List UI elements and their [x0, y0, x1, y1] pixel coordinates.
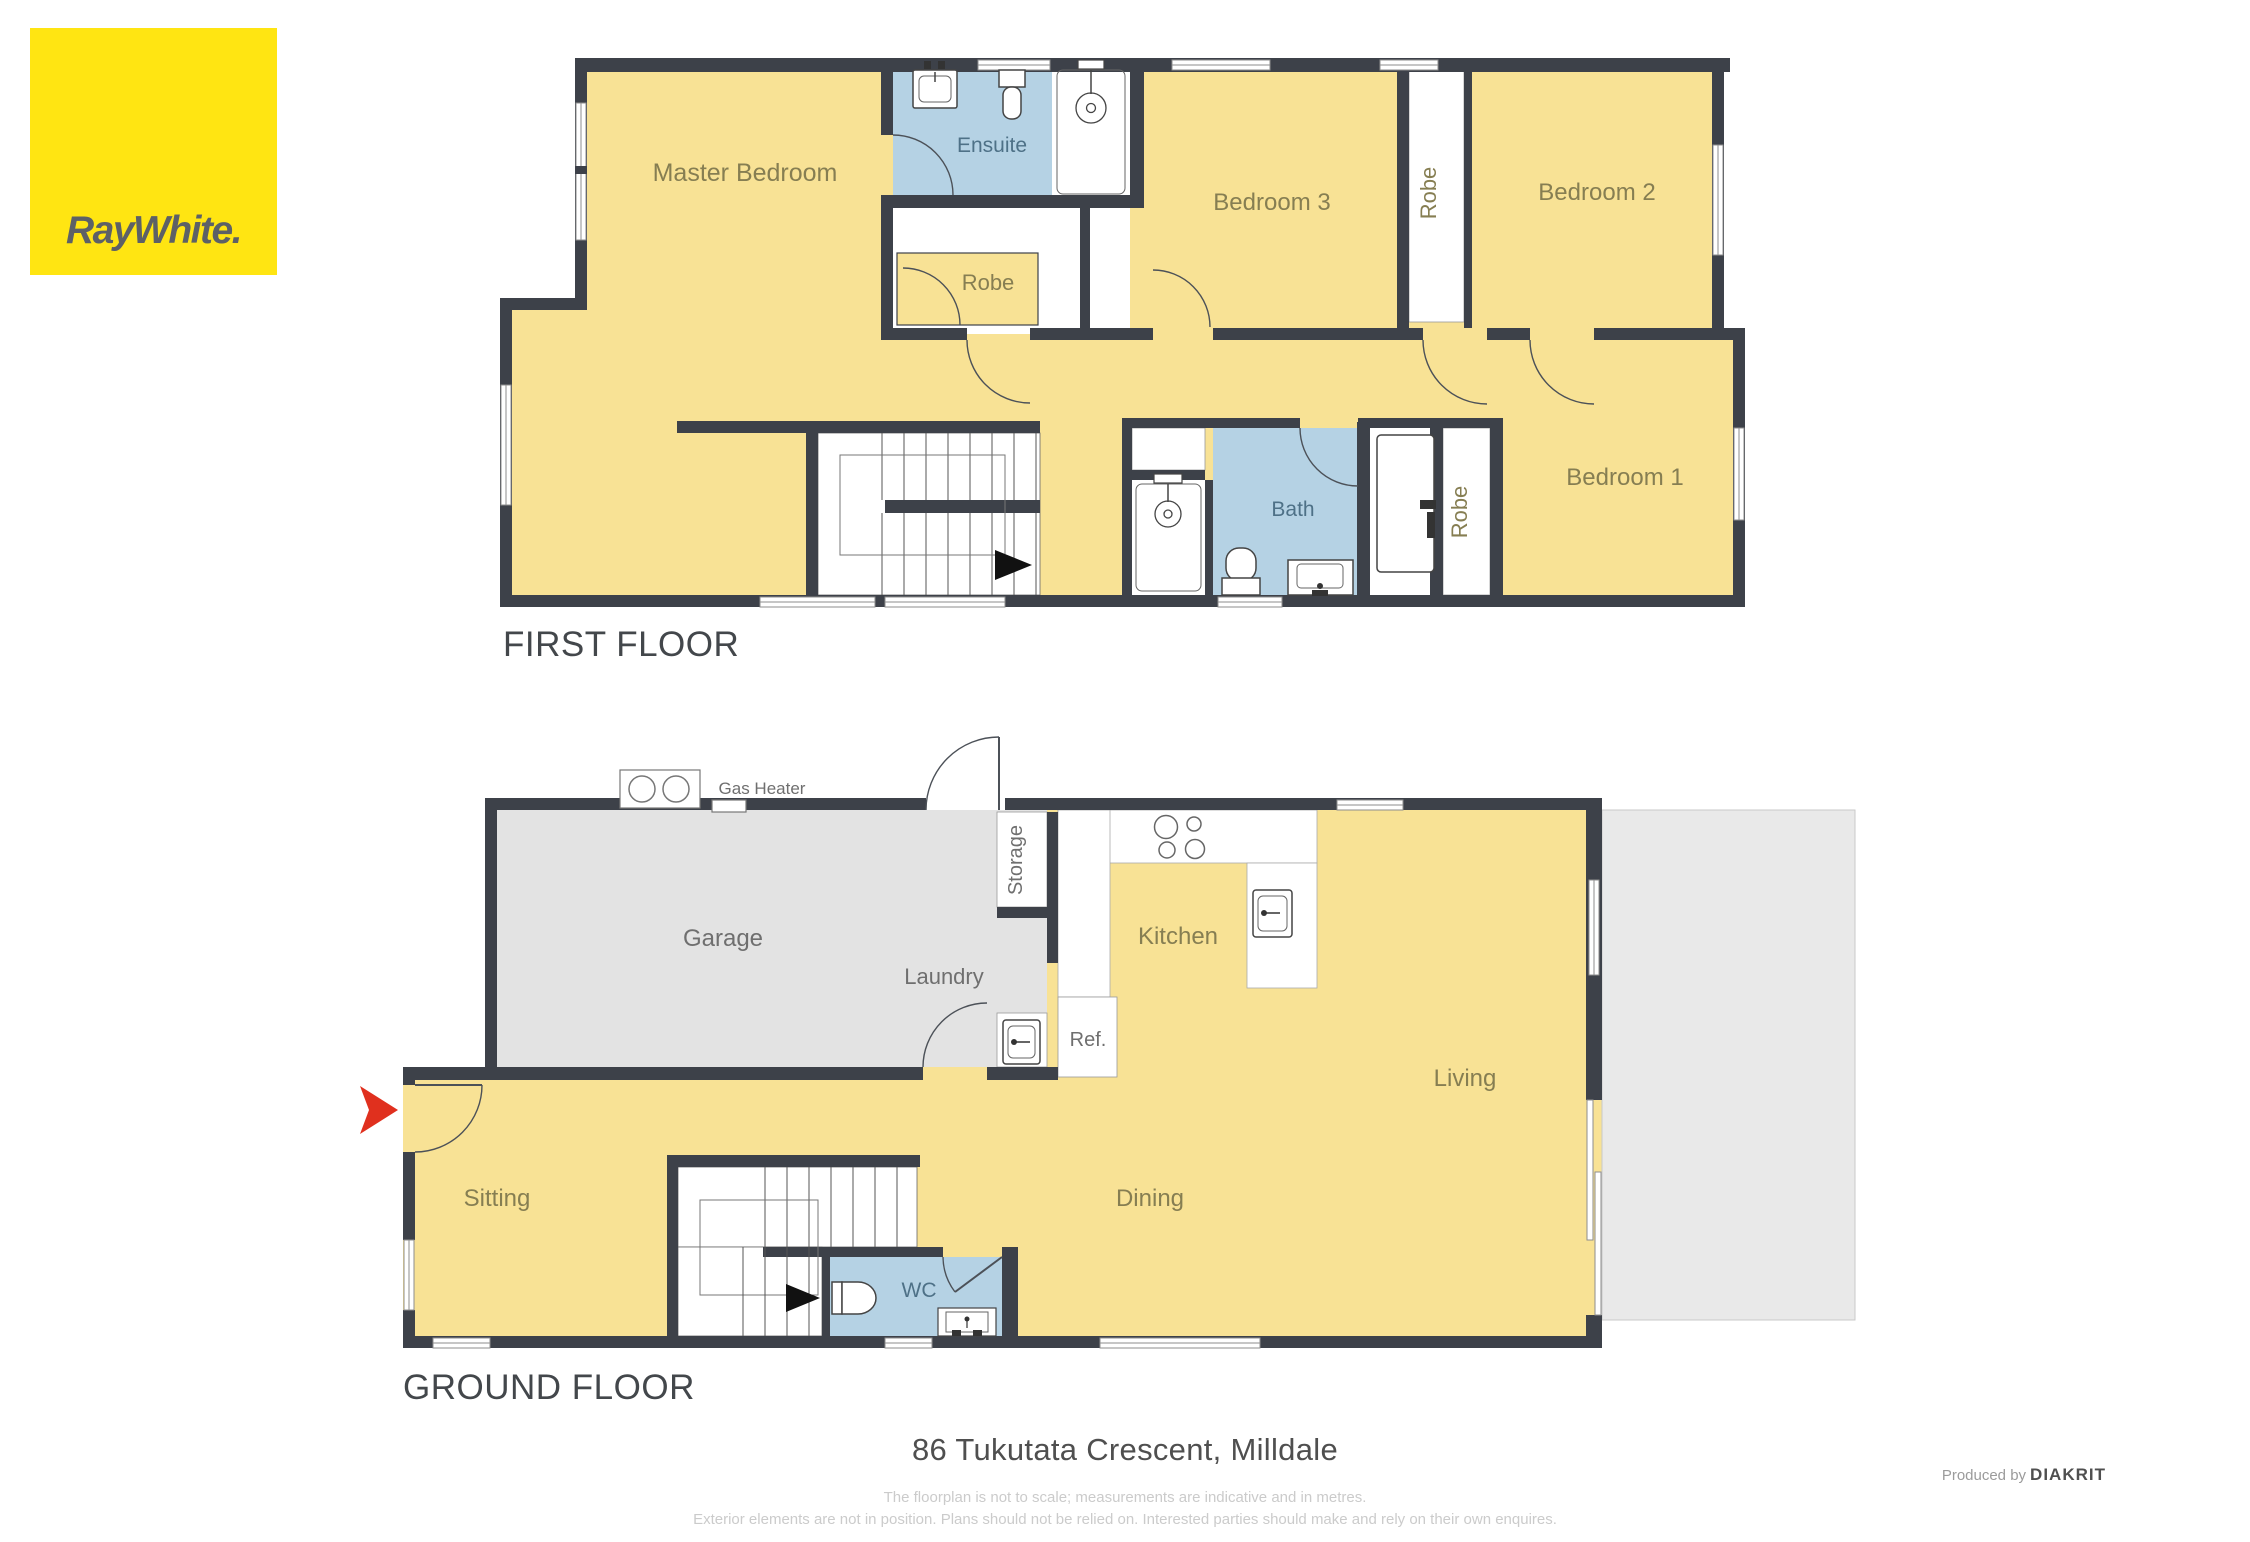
- room-label-bedroom2: Bedroom 2: [1538, 179, 1655, 206]
- kitchen-counter-left: [1058, 810, 1110, 997]
- room-label-storage: Storage: [1005, 825, 1027, 895]
- wc-toilet-icon: [832, 1282, 876, 1314]
- room-label-ref: Ref.: [1070, 1029, 1107, 1051]
- room-label-bedroom1: Bedroom 1: [1566, 464, 1683, 491]
- room-label-bedroom3: Bedroom 3: [1213, 189, 1330, 216]
- produced-by-label: Produced by: [1942, 1467, 2026, 1484]
- producer-name: DIAKRIT: [2030, 1465, 2106, 1484]
- room-label-robe-bedroom2: Robe: [1416, 167, 1441, 220]
- disclaimer-line-1: The floorplan is not to scale; measureme…: [0, 1489, 2250, 1506]
- room-label-sitting: Sitting: [464, 1185, 531, 1212]
- first-floor-plan: Master Bedroom Ensuite Robe Bedroom 3 Ro…: [495, 50, 1755, 620]
- linen-door-panel: [1377, 435, 1436, 572]
- room-label-robe-master: Robe: [962, 270, 1015, 295]
- bath-toilet-icon: [1222, 548, 1260, 595]
- first-floor-title: FIRST FLOOR: [503, 625, 739, 665]
- room-label-gas-heater: Gas Heater: [719, 779, 806, 798]
- sliding-door: [1587, 1100, 1593, 1240]
- stairwell-ground-upper: [678, 1167, 917, 1247]
- room-label-kitchen: Kitchen: [1138, 923, 1218, 950]
- room-label-robe-bedroom1: Robe: [1447, 486, 1472, 539]
- room-label-living: Living: [1434, 1065, 1497, 1092]
- ensuite-toilet-icon: [999, 70, 1025, 119]
- floorplan-page: RayWhite.: [0, 0, 2250, 1542]
- raywhite-logo: RayWhite.: [30, 28, 277, 275]
- sliding-door: [1595, 1172, 1601, 1315]
- bath-vanity-sink-icon: [1288, 560, 1353, 596]
- ground-floor-plan: Garage Gas Heater Storage Laundry Ref. K…: [355, 725, 1860, 1355]
- deck-area: [1602, 810, 1855, 1320]
- room-label-bath: Bath: [1271, 498, 1314, 521]
- kitchen-sink-icon: [1253, 890, 1292, 937]
- laundry-sink-icon: [1003, 1020, 1040, 1064]
- entry-arrow-icon: [360, 1086, 398, 1134]
- room-label-wc: WC: [902, 1279, 937, 1302]
- room-label-garage: Garage: [683, 925, 763, 952]
- bath-closet: [1132, 428, 1205, 470]
- producer-credit: Produced byDIAKRIT: [1942, 1465, 2106, 1485]
- wc-sink-icon: [938, 1308, 996, 1336]
- room-label-dining: Dining: [1116, 1185, 1184, 1212]
- room-label-master-bedroom: Master Bedroom: [653, 159, 838, 187]
- ground-floor-title: GROUND FLOOR: [403, 1368, 695, 1408]
- room-garage: [497, 810, 1047, 1067]
- property-address: 86 Tukutata Crescent, Milldale: [0, 1432, 2250, 1468]
- room-label-laundry: Laundry: [904, 964, 984, 989]
- disclaimer-line-2: Exterior elements are not in position. P…: [0, 1511, 2250, 1528]
- raywhite-logo-text: RayWhite.: [66, 209, 241, 275]
- room-label-ensuite: Ensuite: [957, 134, 1027, 157]
